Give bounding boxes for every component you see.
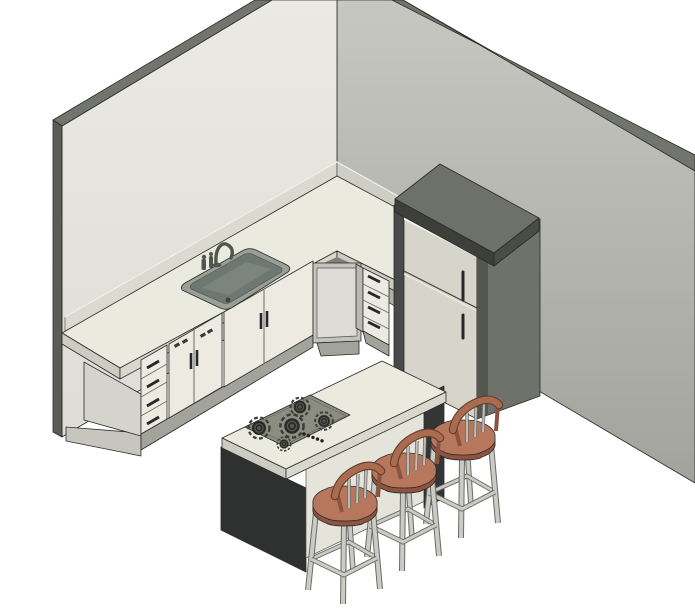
cooktop-knob[interactable] [302,432,305,435]
corner-cabinet-kick [317,341,359,356]
kitchen-3d-viewport[interactable] [0,0,695,614]
cooktop-knob[interactable] [316,437,319,440]
cooktop-knob[interactable] [307,434,310,437]
faucet-handle [209,256,213,268]
kitchen-3d-view[interactable] [0,0,695,614]
corner-cabinet[interactable] [313,263,361,356]
dispenser-cap [202,255,206,259]
soap-dispenser [202,259,207,270]
fridge-side-shade [477,245,488,419]
cooktop-knob[interactable] [311,436,314,439]
corner-cabinet-door[interactable] [317,268,357,338]
handle-cap [209,252,213,256]
left-wall-end-cap [53,120,62,437]
cooktop-knob[interactable] [320,439,323,442]
drawer-stack-side [356,264,363,332]
sink-drain [226,298,231,303]
